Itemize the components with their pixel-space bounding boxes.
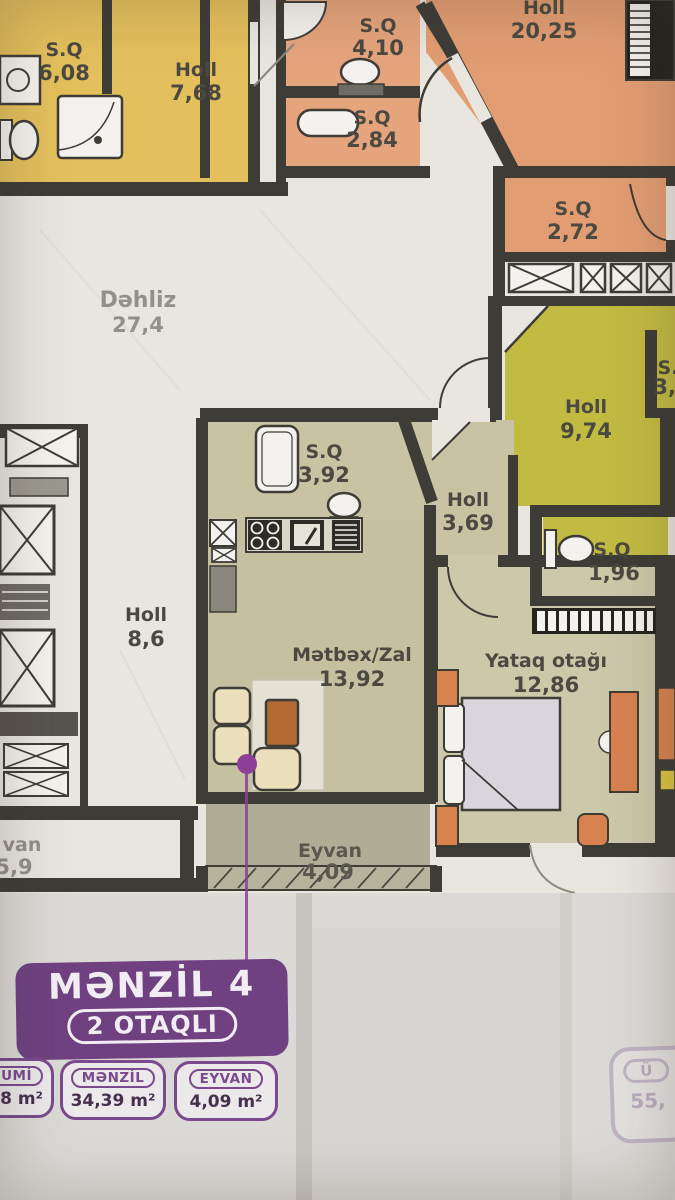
room-area: 3,69 [442,511,494,535]
wall-segment [196,418,208,802]
apartment-marker-dot [237,754,257,774]
room-label: S.Q [593,539,630,561]
wardrobe-icon [436,670,458,706]
room-area: 4,09 [302,860,354,884]
toilet-icon [0,120,38,160]
wall-segment [660,412,675,507]
apartment-card: MƏNZİL 4 2 OTAQLI [15,959,289,1061]
stairs-icon [6,428,78,466]
stat-pill-eyvan: EYVAN 4,09 m² [174,1061,278,1121]
wall-segment [505,296,675,306]
room-label: S.Q [305,441,342,463]
piano-icon [626,0,674,80]
neighbor-value: 55, [624,1088,666,1113]
neighbor-apartment-card: Ü 55, [608,1044,675,1144]
window-icon [647,264,671,292]
wall-segment [0,712,78,736]
room-area: 1,96 [588,561,640,585]
wall-segment [276,166,430,178]
windows [509,264,671,292]
room-area: 3,7 [653,375,675,399]
apartment-type-badge: 2 OTAQLI [67,1007,237,1045]
room-area: 6,08 [38,61,90,85]
vent-shaft-icon [210,520,236,612]
floorplan-photo: S.Q 6,08 Holl 7,68 S.Q 4,10 S.Q 2,84 Hol… [0,0,675,1200]
shaft-icon [4,744,68,768]
wall-segment [508,455,518,567]
room-area: 13,92 [319,667,385,691]
stat-value: 4,09 m² [189,1092,262,1112]
wall-segment [530,505,675,517]
bed-icon [444,698,560,810]
wall-segment [493,166,675,178]
wall-segment [102,0,112,94]
floorplan-svg: S.Q 6,08 Holl 7,68 S.Q 4,10 S.Q 2,84 Hol… [0,0,675,900]
wall-segment [0,806,198,820]
room-area: 4,10 [352,36,404,60]
window-icon [581,264,605,292]
stat-pill-menzil: MƏNZİL 34,39 m² [60,1060,166,1120]
wardrobe-icon [658,688,675,760]
cabinet-icon [660,770,675,790]
room-label: S.Q [45,39,82,61]
stat-value: 8 m² [0,1089,43,1109]
wall-segment [196,792,436,804]
wall-segment [505,252,675,262]
sofa-icon [214,688,250,724]
print-through-ghost [312,928,560,1200]
wall-segment [488,296,502,420]
room-area: 5,9 [0,855,33,879]
room-label: Eyvan [298,840,362,862]
hatch-block [0,584,50,620]
room-area: 9,74 [560,419,612,443]
wall-segment [645,330,657,418]
room-area: 12,86 [513,673,579,697]
room-area: 3,92 [298,463,350,487]
room-area: 2,84 [346,128,398,152]
wall-segment [530,596,675,606]
apartment-title: MƏNZİL 4 [48,964,256,1008]
window-icon [509,264,573,292]
room-label: Yataq otağı [484,650,607,672]
elevator-icon [0,506,54,574]
door-gap [250,22,258,84]
bath-icon [256,426,298,492]
paper-crease [560,893,572,1200]
neighbor-label: Ü [623,1058,670,1084]
piano-icon [532,608,656,634]
stat-label: EYVAN [189,1069,264,1089]
armchair-icon [254,748,300,790]
room-label: S.Q [554,198,591,220]
door-gap [530,843,582,857]
stat-label: UMİ [0,1066,43,1086]
door-gap [666,186,675,240]
stool-icon [578,814,608,846]
shaft-icon [4,772,68,796]
wall-segment [80,424,88,820]
room-area: 20,25 [511,19,577,43]
room-label: Holl [523,0,565,19]
window-icon [611,264,641,292]
room-label: van [3,834,42,856]
door-gap [448,555,498,567]
paper-crease [296,893,312,1200]
wall-segment [493,166,505,306]
paper-edge [0,893,675,900]
marker-connector-line [245,772,248,964]
room-label: S.Q [359,15,396,37]
kitchen-counter [246,518,362,552]
wall-segment [0,182,288,196]
toilet-icon [338,59,384,96]
room-area: 8,6 [127,627,164,651]
shower-icon [58,96,122,158]
door-gap [438,408,490,422]
stat-pill-umumi: UMİ 8 m² [0,1058,54,1118]
room-label: Holl [447,489,489,511]
room-label: Holl [175,59,217,81]
washer-icon [0,56,40,104]
room-area: 7,68 [170,81,222,105]
stat-label: MƏNZİL [71,1068,156,1088]
room-label: Holl [125,604,167,626]
wall-segment [530,505,542,600]
room-label: Holl [565,396,607,418]
room-label: S.Q [353,107,390,129]
room-label: Mətbəx/Zal [292,644,412,666]
coffee-table-icon [266,700,298,746]
room-area: 27,4 [112,313,164,337]
room-area: 2,72 [547,220,599,244]
wall-segment [0,878,198,892]
landing-block [10,478,68,496]
elevator-icon [0,630,54,706]
room-label: Dəhliz [100,288,177,313]
stat-value: 34,39 m² [71,1091,156,1111]
wardrobe-icon [436,806,458,846]
